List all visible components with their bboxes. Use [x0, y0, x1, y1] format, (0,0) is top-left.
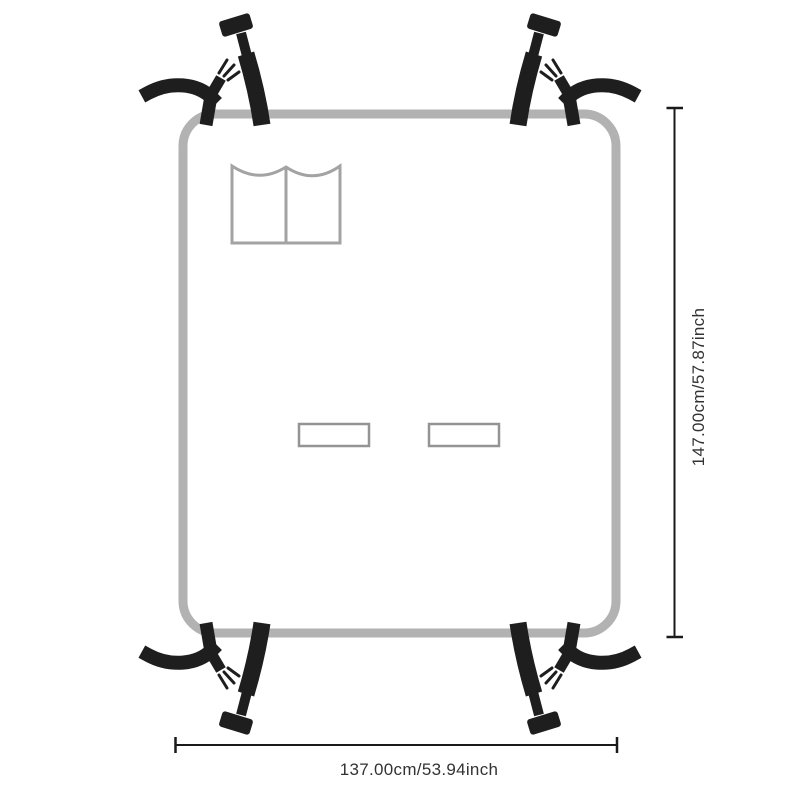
buckle-icon: [218, 711, 253, 736]
clip-prongs-icon: [541, 668, 561, 688]
width-dimension-label: 137.00cm/53.94inch: [340, 760, 499, 779]
buckle-strap-neck: [241, 33, 247, 56]
side-strap: [148, 85, 212, 98]
buckle-icon: [526, 711, 561, 736]
storage-pocket: [232, 166, 340, 243]
product-dimension-diagram: 147.00cm/57.87inch 137.00cm/53.94inch: [0, 0, 800, 800]
strap-assembly-top-left: [148, 13, 262, 125]
clip-prongs-icon: [219, 668, 239, 688]
clip-prongs-icon: [541, 60, 561, 80]
strap-assembly-bottom-left: [148, 623, 262, 735]
width-dimension: 137.00cm/53.94inch: [176, 737, 618, 779]
strap-assembly-bottom-right: [518, 623, 632, 735]
clip-prongs-icon: [219, 60, 239, 80]
buckle-icon: [218, 13, 253, 38]
buckle-strap-neck: [533, 692, 539, 715]
buckle-icon: [526, 13, 561, 38]
seatbelt-slot-left: [299, 424, 369, 446]
height-dimension: 147.00cm/57.87inch: [667, 108, 709, 637]
side-strap: [568, 85, 632, 98]
seat-cover-diagram-canvas: 147.00cm/57.87inch 137.00cm/53.94inch: [0, 0, 800, 800]
buckle-strap-neck: [533, 33, 539, 56]
seatbelt-slot-right: [429, 424, 499, 446]
side-strap: [568, 650, 632, 663]
height-dimension-label: 147.00cm/57.87inch: [689, 308, 708, 467]
strap-assembly-top-right: [518, 13, 632, 125]
side-strap: [148, 650, 212, 663]
buckle-strap-neck: [241, 692, 247, 715]
